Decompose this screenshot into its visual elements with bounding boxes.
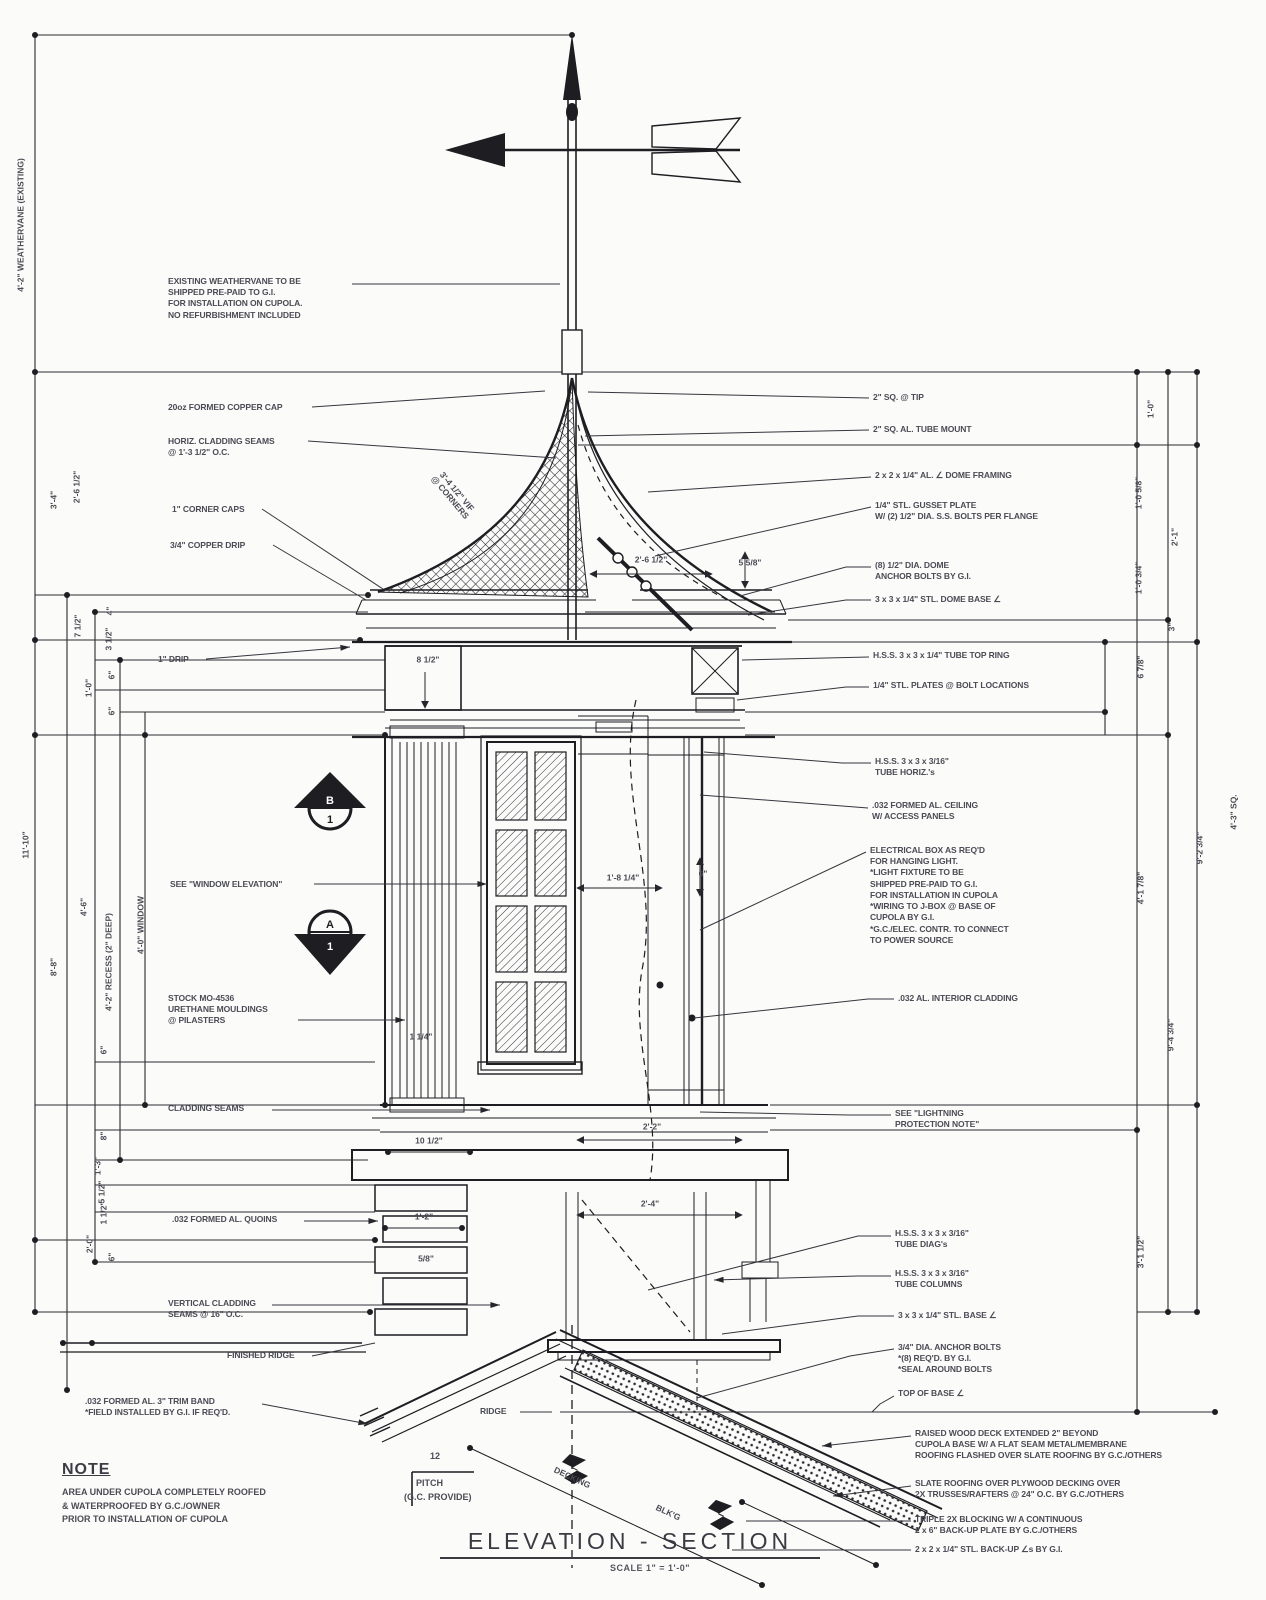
dim-label: 4'-6" (79, 898, 88, 916)
stl-plates-note: 1/4" STL. PLATES @ BOLT LOCATIONS (873, 680, 1029, 691)
dim-label: 2'-4" (641, 1199, 659, 1208)
tube-diags-note: H.S.S. 3 x 3 x 3/16" TUBE DIAG's (895, 1228, 969, 1250)
gusset-plate-note: 1/4" STL. GUSSET PLATE W/ (2) 1/2" DIA. … (875, 500, 1038, 522)
dim-label: 1 1/4" (410, 1032, 433, 1041)
dim-label: 5 1/2" (97, 1181, 106, 1204)
dim-label: 1'-0 3/4" (1134, 562, 1143, 595)
dim-label: 4'-2" WEATHERVANE (EXISTING) (16, 158, 25, 292)
annotation-layer: EXISTING WEATHERVANE TO BE SHIPPED PRE-P… (0, 0, 1266, 1600)
note-heading: NOTE (62, 1462, 110, 1478)
raised-deck-note: RAISED WOOD DECK EXTENDED 2" BEYOND CUPO… (915, 1428, 1162, 1462)
lightning-protection-note: SEE "LIGHTNING PROTECTION NOTE" (895, 1108, 979, 1130)
dim-label: 4'-1 7/8" (1136, 872, 1145, 905)
blocking-note: TRIPLE 2X BLOCKING W/ A CONTINUOUS 2 x 6… (915, 1514, 1082, 1536)
drawing-title: ELEVATION - SECTION (440, 1530, 820, 1559)
one-inch-drip-note: 1" DRIP (158, 654, 189, 665)
dim-label: 4'-0" WINDOW (136, 896, 145, 954)
dim-label: 5 5/8" (739, 558, 762, 567)
dim-label: 6" (107, 1253, 116, 1262)
dim-label: 2'-0" (85, 1235, 94, 1253)
top-of-base-note: TOP OF BASE ∠ (898, 1388, 964, 1399)
interior-cladding-note: .032 AL. INTERIOR CLADDING (898, 993, 1018, 1004)
dim-label: 8 1/2" (417, 655, 440, 664)
window-elevation-note: SEE "WINDOW ELEVATION" (170, 879, 282, 890)
dim-label: 1'-2" (415, 1212, 433, 1221)
dim-label: 2'-6 1/2" (72, 471, 81, 504)
dome-anchor-bolts-note: (8) 1/2" DIA. DOME ANCHOR BOLTS BY G.I. (875, 560, 971, 582)
dim-label: 1'-0" (84, 679, 93, 697)
tip-note: 2" SQ. @ TIP (873, 392, 924, 403)
horiz-cladding-seams-note: HORIZ. CLADDING SEAMS @ 1'-3 1/2" O.C. (168, 436, 275, 458)
dim-label: 6" (699, 869, 708, 878)
finished-ridge-note: FINISHED RIDGE (227, 1350, 295, 1361)
dim-label: DECKING (552, 1465, 591, 1490)
tube-columns-note: H.S.S. 3 x 3 x 3/16" TUBE COLUMNS (895, 1268, 969, 1290)
dim-label: 2'-6 1/2" (635, 555, 668, 564)
drawing-scale: SCALE 1" = 1'-0" (540, 1564, 760, 1573)
dim-label: 6" (99, 1046, 108, 1055)
copper-cap-note: 20oz FORMED COPPER CAP (168, 402, 282, 413)
backup-angles-note: 2 x 2 x 1/4" STL. BACK-UP ∠s BY G.I. (915, 1544, 1063, 1555)
quoins-note: .032 FORMED AL. QUOINS (172, 1214, 277, 1225)
cladding-seams-note: CLADDING SEAMS (168, 1103, 244, 1114)
corner-caps-note: 1" CORNER CAPS (172, 504, 245, 515)
dim-label: 4" (105, 607, 114, 616)
dim-label: 11'-10" (21, 831, 30, 858)
dome-base-angle-note: 3 x 3 x 1/4" STL. DOME BASE ∠ (875, 594, 1001, 605)
dim-label: 9'-4 3/4" (1166, 1019, 1175, 1052)
dim-label: 3'-1 1/2" (1136, 1236, 1145, 1269)
dim-label: 6" (107, 707, 116, 716)
dim-label: 1'-0 5/8" (1134, 477, 1143, 510)
dim-label: 7 1/2" (73, 615, 82, 638)
dim-label: 8" (99, 1132, 108, 1141)
dim-label: 1'-8 1/4" (607, 873, 640, 882)
dim-label: 9'-2 3/4" (1195, 832, 1204, 865)
dim-label: 4'-3" SQ. (1229, 794, 1238, 829)
electrical-box-note: ELECTRICAL BOX AS REQ'D FOR HANGING LIGH… (870, 845, 1009, 946)
pitch-provider-label: (G.C. PROVIDE) (404, 1492, 472, 1504)
copper-drip-note: 3/4" COPPER DRIP (170, 540, 245, 551)
dim-label: BLK'G (654, 1503, 682, 1523)
tube-mount-note: 2" SQ. AL. TUBE MOUNT (873, 424, 971, 435)
drawing-sheet: B 1 A 1 EXISTING WEATHERVANE TO BE SHIPP… (0, 0, 1266, 1600)
pitch-rise-value: 12 (430, 1452, 440, 1461)
ridge-label: RIDGE (480, 1406, 506, 1417)
dim-label: 3'-4 1/2" VIF @ CORNERS (429, 469, 477, 522)
dim-label: 10 1/2" (415, 1136, 443, 1145)
dome-framing-note: 2 x 2 x 1/4" AL. ∠ DOME FRAMING (875, 470, 1012, 481)
tube-top-ring-note: H.S.S. 3 x 3 x 1/4" TUBE TOP RING (873, 650, 1009, 661)
dim-label: 2'-2" (643, 1122, 661, 1131)
dim-label: 1'-3" (93, 1157, 102, 1175)
dim-label: 1 1/2" (99, 1202, 108, 1225)
dim-label: 3'-4" (49, 491, 58, 509)
dim-label: 6" (107, 671, 116, 680)
al-ceiling-note: .032 FORMED AL. CEILING W/ ACCESS PANELS (872, 800, 978, 822)
existing-weathervane-note: EXISTING WEATHERVANE TO BE SHIPPED PRE-P… (168, 276, 302, 321)
dim-label: 5/8" (418, 1254, 434, 1263)
vertical-cladding-seams-note: VERTICAL CLADDING SEAMS @ 16" O.C. (168, 1298, 256, 1320)
dim-label: 6 7/8" (1136, 656, 1145, 679)
dim-label: 2'-1" (1170, 528, 1179, 546)
dim-label: 3 1/2" (104, 628, 113, 651)
dim-label: 8'-8" (49, 958, 58, 976)
dim-label: 4'-2" RECESS (2" DEEP) (104, 913, 113, 1011)
anchor-bolts-note: 3/4" DIA. ANCHOR BOLTS *(8) REQ'D. BY G.… (898, 1342, 1001, 1376)
note-body: AREA UNDER CUPOLA COMPLETELY ROOFED & WA… (62, 1486, 266, 1527)
trim-band-note: .032 FORMED AL. 3" TRIM BAND *FIELD INST… (85, 1396, 230, 1418)
dim-label: 1'-0" (1146, 400, 1155, 418)
pitch-label: PITCH (416, 1478, 443, 1490)
dim-label: 3" (1167, 623, 1176, 632)
urethane-mouldings-note: STOCK MO-4536 URETHANE MOULDINGS @ PILAS… (168, 993, 268, 1027)
base-angle-note: 3 x 3 x 1/4" STL. BASE ∠ (898, 1310, 997, 1321)
tube-horiz-note: H.S.S. 3 x 3 x 3/16" TUBE HORIZ.'s (875, 756, 949, 778)
slate-roofing-note: SLATE ROOFING OVER PLYWOOD DECKING OVER … (915, 1478, 1124, 1500)
